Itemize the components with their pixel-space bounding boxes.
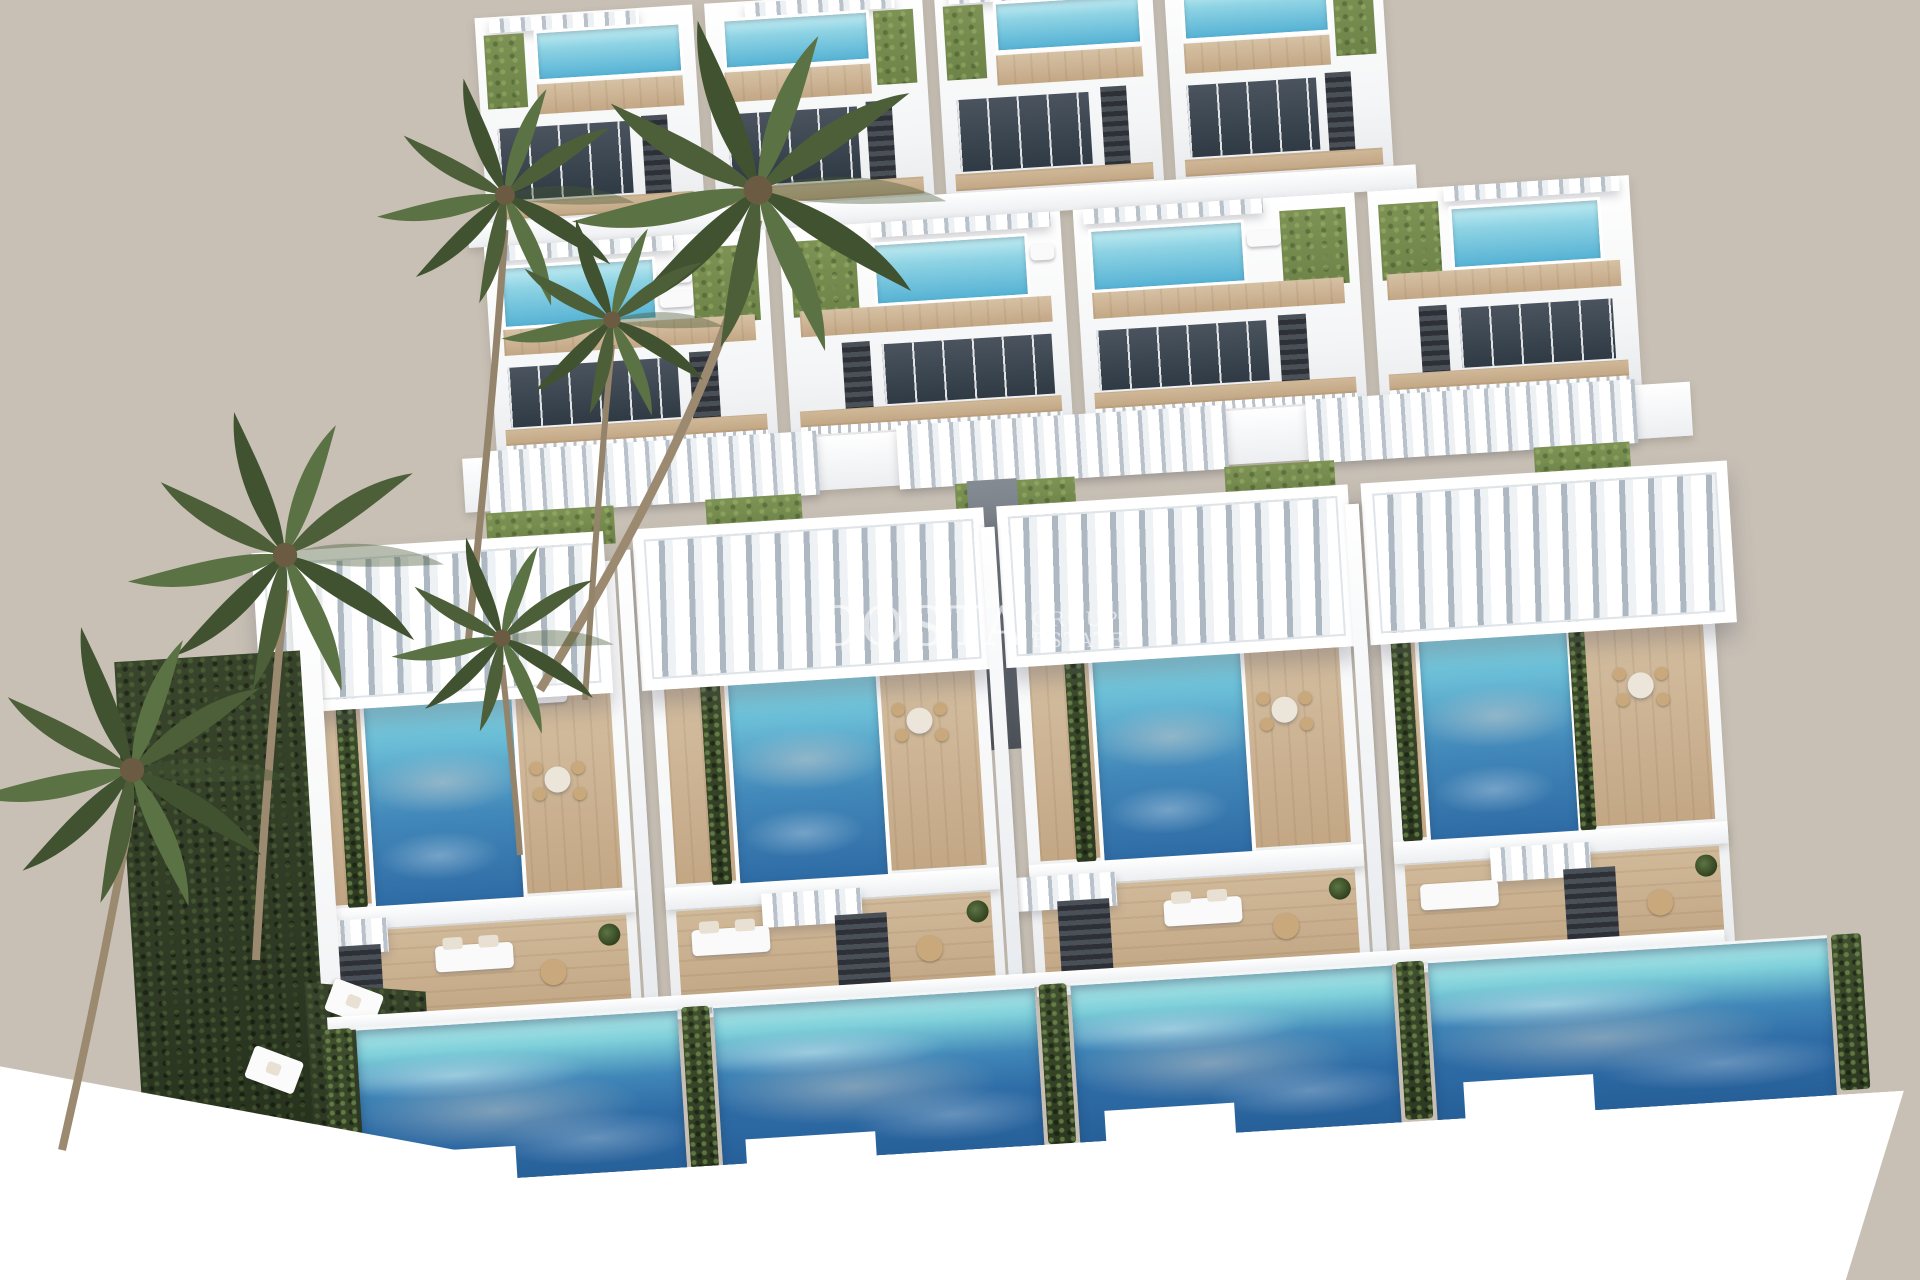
stair: [1418, 305, 1450, 375]
rooftop-pool: [499, 256, 659, 330]
glass-facade: [1459, 298, 1616, 368]
roof-deck: [724, 63, 872, 102]
back-villa: [475, 5, 705, 223]
lounger-pillow: [345, 993, 362, 1009]
stair: [641, 114, 672, 195]
sun-lounger: [659, 290, 694, 308]
cushion: [1207, 889, 1228, 902]
roof-deck: [996, 46, 1144, 85]
roof-lawn: [789, 238, 860, 318]
rooftop-pool: [1088, 219, 1248, 293]
cushion: [699, 921, 720, 934]
back-villa: [934, 0, 1164, 194]
back-villa: [704, 0, 934, 208]
rooftop-pool: [992, 0, 1143, 54]
glass-facade: [1186, 78, 1320, 158]
middle-villa: [1367, 175, 1642, 401]
louvered-pergola: [1360, 460, 1736, 645]
stair: [842, 341, 874, 411]
watermark: COSTA GROUP ESTATES: [816, 600, 1141, 654]
stair: [835, 912, 892, 991]
stair: [1325, 71, 1356, 152]
rooftop-pool: [533, 21, 684, 82]
wall-step: [1463, 1074, 1597, 1142]
pool-hedge: [1396, 960, 1434, 1119]
front-villa: [1370, 462, 1735, 974]
watermark-subtitle: GROUP ESTATES: [1032, 600, 1142, 651]
pool-hedge: [1038, 983, 1076, 1144]
watermark-word-group: GROUP: [1032, 609, 1142, 630]
pool-hedge: [1831, 933, 1871, 1091]
middle-villa: [778, 211, 1073, 438]
cushion: [735, 918, 756, 931]
glass-facade: [498, 121, 634, 201]
back-villa: [1163, 0, 1393, 179]
cushion: [478, 935, 499, 948]
stair: [866, 100, 897, 181]
glass-facade: [727, 106, 861, 186]
lounger-pillow: [265, 1061, 282, 1077]
front-villa: [642, 508, 1007, 1020]
glass-facade: [882, 334, 1055, 405]
render-canvas: COSTA GROUP ESTATES: [0, 0, 1920, 1280]
roof-lawn: [484, 33, 529, 109]
glass-facade: [957, 92, 1093, 172]
roof-deck: [537, 75, 685, 114]
front-villa: [1006, 485, 1371, 997]
roof-deck: [1184, 35, 1332, 74]
stair: [1278, 314, 1310, 384]
glass-facade: [508, 357, 681, 428]
middle-villa: [1073, 192, 1368, 419]
middle-villa: [484, 229, 779, 456]
stair: [1057, 898, 1114, 977]
roof-lawn: [1279, 207, 1350, 287]
stair: [1563, 866, 1620, 945]
rooftop-pool: [1448, 197, 1604, 270]
cushion: [1171, 891, 1192, 904]
roof-lawn: [1332, 0, 1377, 56]
rooftop-pool: [721, 9, 872, 70]
roof-lawn: [1378, 201, 1443, 281]
stair: [1100, 85, 1131, 166]
roof-lawn: [690, 244, 761, 324]
sun-lounger: [658, 266, 693, 284]
outdoor-sofa: [1420, 880, 1499, 911]
wall-step: [745, 1131, 879, 1199]
pool-hedge: [681, 1005, 719, 1168]
stair: [689, 351, 721, 421]
wall-step: [1104, 1103, 1238, 1171]
roof-lawn: [873, 9, 918, 85]
rooftop-pool: [871, 233, 1031, 307]
roof-lawn: [943, 4, 988, 80]
watermark-brand: COSTA: [816, 600, 1026, 654]
cushion: [442, 937, 463, 950]
sun-lounger: [1246, 229, 1281, 247]
glass-facade: [1096, 320, 1269, 391]
watermark-word-estates: ESTATES: [1032, 630, 1142, 651]
sun-lounger: [1030, 243, 1055, 260]
